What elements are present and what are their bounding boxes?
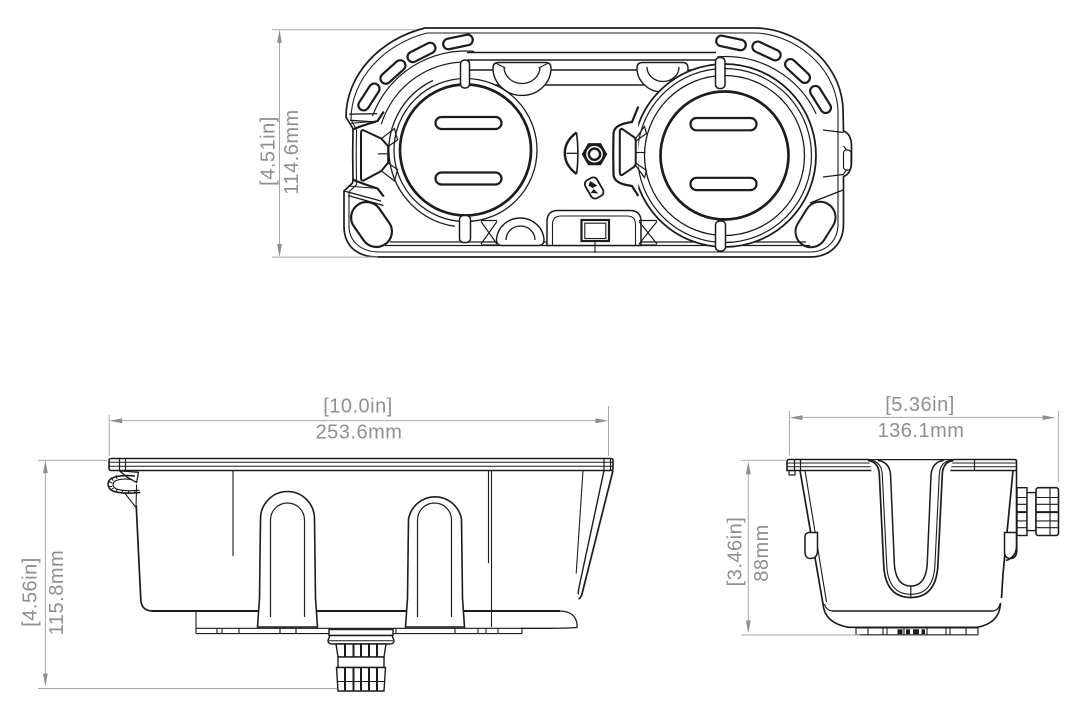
svg-text:136.1mm: 136.1mm xyxy=(878,420,965,442)
svg-text:88mm: 88mm xyxy=(751,524,773,582)
svg-text:[10.0in]: [10.0in] xyxy=(323,396,393,418)
svg-text:[4.51in]: [4.51in] xyxy=(258,116,280,186)
svg-text:[3.46in]: [3.46in] xyxy=(725,517,747,587)
svg-text:[4.56in]: [4.56in] xyxy=(20,557,42,627)
svg-text:253.6mm: 253.6mm xyxy=(316,422,403,444)
svg-text:[5.36in]: [5.36in] xyxy=(885,394,955,416)
svg-text:115.8mm: 115.8mm xyxy=(46,550,68,635)
svg-text:114.6mm: 114.6mm xyxy=(281,109,303,194)
